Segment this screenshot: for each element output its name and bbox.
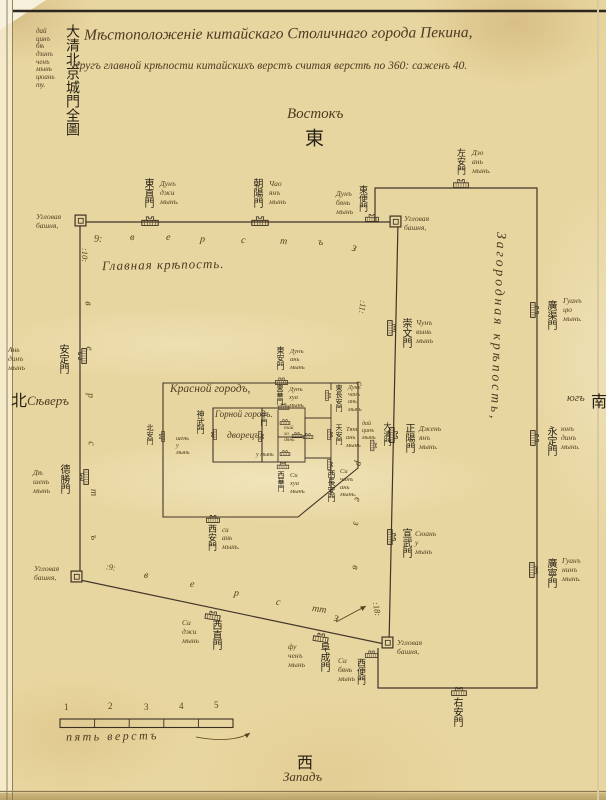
corner-tower-label-nw: Угловая башня, — [36, 212, 61, 230]
gate-zhengyangmen-zh: 正陽門 — [403, 423, 413, 459]
compass-west-ru: Западъ — [283, 770, 322, 784]
margin-chinese-title: 大清北京城門全圖 — [64, 24, 78, 146]
translit-line: ту. — [36, 82, 55, 90]
gate-fuchengmen-zh: 阜成門 — [318, 642, 328, 680]
gate-zuoanmen-ru: Дзо ань мынь. — [472, 148, 491, 175]
gate-tower-icon — [209, 429, 218, 441]
verst-mark: ъ — [318, 237, 324, 248]
corner-tower-label-se: Угловая башня, — [397, 638, 422, 656]
gate-xuanwumen-zh: 宣武門 — [400, 528, 410, 564]
verst-mark: р — [200, 234, 206, 245]
gate-shenwumen-zh: 神武門 — [196, 410, 204, 444]
compass-south-zh: 南 — [588, 393, 604, 409]
compass-west-zh: 西 — [294, 754, 310, 770]
gate-tower-icon — [325, 390, 334, 402]
gate-tower-icon — [370, 439, 379, 452]
scale-number: 4 — [179, 701, 184, 711]
gate-tower-icon — [530, 429, 542, 447]
gate-tower-icon — [258, 431, 267, 443]
verst-mark: с — [354, 381, 365, 386]
gate-xichanganmen-ru: Си чанъ ань мынь. — [340, 468, 356, 499]
scale-number: 2 — [108, 701, 113, 711]
gate-chaoyangmen-zh: 朝陽門 — [251, 178, 261, 216]
gate-andingmen-ru: Ань динъ мынь — [8, 345, 25, 372]
gate-yongdingmen-zh: 永定門 — [545, 426, 555, 468]
gate-yongdingmen-ru: юнъ динъ мынь. — [561, 424, 580, 451]
gate-donganmen-zh: 東安門 — [276, 346, 284, 374]
verst-mark: с — [86, 441, 97, 446]
gate-tower-icon — [77, 468, 89, 486]
imperial-city-label: Красной городъ, — [170, 383, 250, 396]
verst-mark: е — [84, 346, 95, 351]
gate-donganmen-ru: Дунъ ань мынь — [290, 348, 305, 371]
palace-label-2: дворецъ. — [227, 431, 262, 441]
verst-mark: е — [166, 232, 171, 243]
main-city-label: Главная крѣпость. — [102, 257, 225, 273]
gate-xizhimen-ru: Си джи мынь — [182, 618, 199, 645]
gate-tower-icon — [327, 459, 336, 471]
margin-transliteration: дай цинъ бѣ дзинъ ченъ мынь цюань ту. — [36, 28, 55, 90]
gate-tower-icon — [452, 176, 470, 188]
gate-tower-icon — [364, 648, 379, 658]
gate-tower-icon — [364, 211, 380, 222]
verst-mark: т — [280, 236, 288, 247]
gate-dongzhimen-zh: 東直門 — [142, 178, 152, 216]
gate-tower-icon — [250, 213, 270, 226]
corner-tower-label-ne: Угловая башня, — [404, 214, 429, 232]
gate-tiananmen-ru: Тянь ань мынь — [346, 426, 361, 449]
gate-chongwenmen-zh: 崇文門 — [400, 318, 410, 356]
gate-xibianmen-ru: Си бянь мынь — [338, 656, 355, 683]
gate-guangningmen-ru: Гуанъ нинъ мынь. — [562, 556, 581, 583]
map-subtitle: Кругъ главной крѣпости китайскихъ верстъ… — [72, 60, 597, 73]
gate-tower-icon — [277, 401, 290, 410]
gate-guangningmen-zh: 廣寧門 — [545, 558, 555, 602]
gate-tiananmen-zh: 天安門 — [335, 424, 342, 448]
compass-east-zh: 東 — [303, 128, 322, 147]
gate-tower-icon — [157, 431, 166, 443]
gate-youanmen-zh: 右安門 — [451, 697, 461, 737]
gate-tower-icon — [140, 213, 160, 226]
gate-xibianmen-zh: 西便門 — [356, 658, 365, 688]
gate-tower-icon — [276, 460, 290, 469]
gate-wumen-zh: 午門 — [260, 412, 267, 428]
verst-mark: :9: — [105, 561, 116, 572]
gate-wumen-ru: у мынь — [256, 452, 274, 459]
gate-zuoanmen-zh: 左安門 — [456, 148, 465, 178]
verst-mark: т — [88, 488, 100, 496]
gate-tower-icon — [387, 528, 399, 546]
scale-number: 5 — [214, 700, 219, 710]
gate-guangqumen-ru: Гуанъ цю мынь. — [563, 296, 582, 323]
scale-caption: пять верстъ — [66, 729, 159, 744]
verst-mark: ъ — [88, 534, 99, 540]
verst-mark: тт — [311, 603, 327, 616]
gate-xianmen-ru: си ань мынь. — [222, 526, 240, 551]
gate-xihuamen-zh: 西華門 — [277, 471, 284, 495]
gate-tower-icon — [387, 319, 399, 337]
scale-number: 1 — [64, 702, 69, 712]
gate-dongbianmen-ru: Дунъ бянь мынь — [336, 189, 353, 216]
compass-east-ru: Востокъ — [287, 106, 343, 123]
gate-daqingmen-zh: 大清門 — [383, 422, 391, 452]
gate-fuchengmen-ru: фу ченъ мынь — [288, 642, 305, 669]
gate-donghuamen-ru: Дунъ хуа мынь — [289, 386, 304, 409]
gate-andingmen-zh: 安定門 — [57, 344, 67, 382]
gate-deshengmen-zh: 德勝門 — [58, 464, 68, 502]
verst-mark: 9: — [94, 234, 102, 245]
compass-north-ru: Сѣверъ — [27, 394, 69, 408]
gate-xianmen-zh: 西安門 — [207, 524, 216, 558]
gate-zhengyangmen-ru: Джень янъ мынь. — [419, 424, 441, 451]
hall-label: тай хо дянь — [284, 425, 295, 443]
gate-tower-icon — [529, 561, 541, 579]
corner-tower-label-sw: Угловая башня, — [34, 564, 59, 582]
compass-north-zh: 北 — [8, 392, 24, 408]
compass-south-ru: югъ — [567, 392, 585, 404]
manuscript-map-of-beijing: 大清北京城門全圖 дай цинъ бѣ дзинъ ченъ мынь цюа… — [0, 0, 606, 800]
gate-shenwumen-ru: шень у мынь — [176, 436, 190, 458]
gate-guangqumen-zh: 廣渠門 — [545, 300, 555, 344]
verst-mark: :11: — [357, 300, 368, 314]
gate-deshengmen-ru: Дѣ шень мынь — [33, 468, 50, 495]
gate-dongzhimen-ru: Дунъ джи мынь. — [160, 179, 179, 206]
gate-xuanwumen-ru: Сюань у мынь — [415, 529, 436, 556]
gate-tower-icon — [530, 301, 542, 319]
map-title: Мѣстоположенiе китайскаго Столичнаго гор… — [84, 23, 574, 43]
verst-mark: в — [130, 232, 135, 243]
gate-xizhimen-zh: 西直門 — [210, 620, 220, 656]
verst-mark: с — [241, 235, 246, 246]
gate-beianmen-zh: 北安門 — [146, 424, 153, 448]
verst-mark: :10: — [80, 248, 90, 262]
gate-xihuamen-ru: Си хуа мынь — [290, 472, 305, 495]
gate-dongchanganmen-zh: 東長安門 — [335, 384, 342, 414]
gate-dongchanganmen-ru: Дунъ чанъ ань мынь — [348, 385, 362, 414]
gate-xichanganmen-zh: 西長安門 — [327, 470, 335, 506]
gate-tower-icon — [205, 512, 221, 523]
scale-number: 3 — [144, 702, 149, 712]
verst-mark: р — [85, 393, 96, 399]
gate-chongwenmen-ru: Чунъ вынь мынь — [416, 318, 433, 345]
gate-chaoyangmen-ru: Чао янъ мынь — [269, 179, 286, 206]
gate-tower-icon — [450, 684, 468, 696]
